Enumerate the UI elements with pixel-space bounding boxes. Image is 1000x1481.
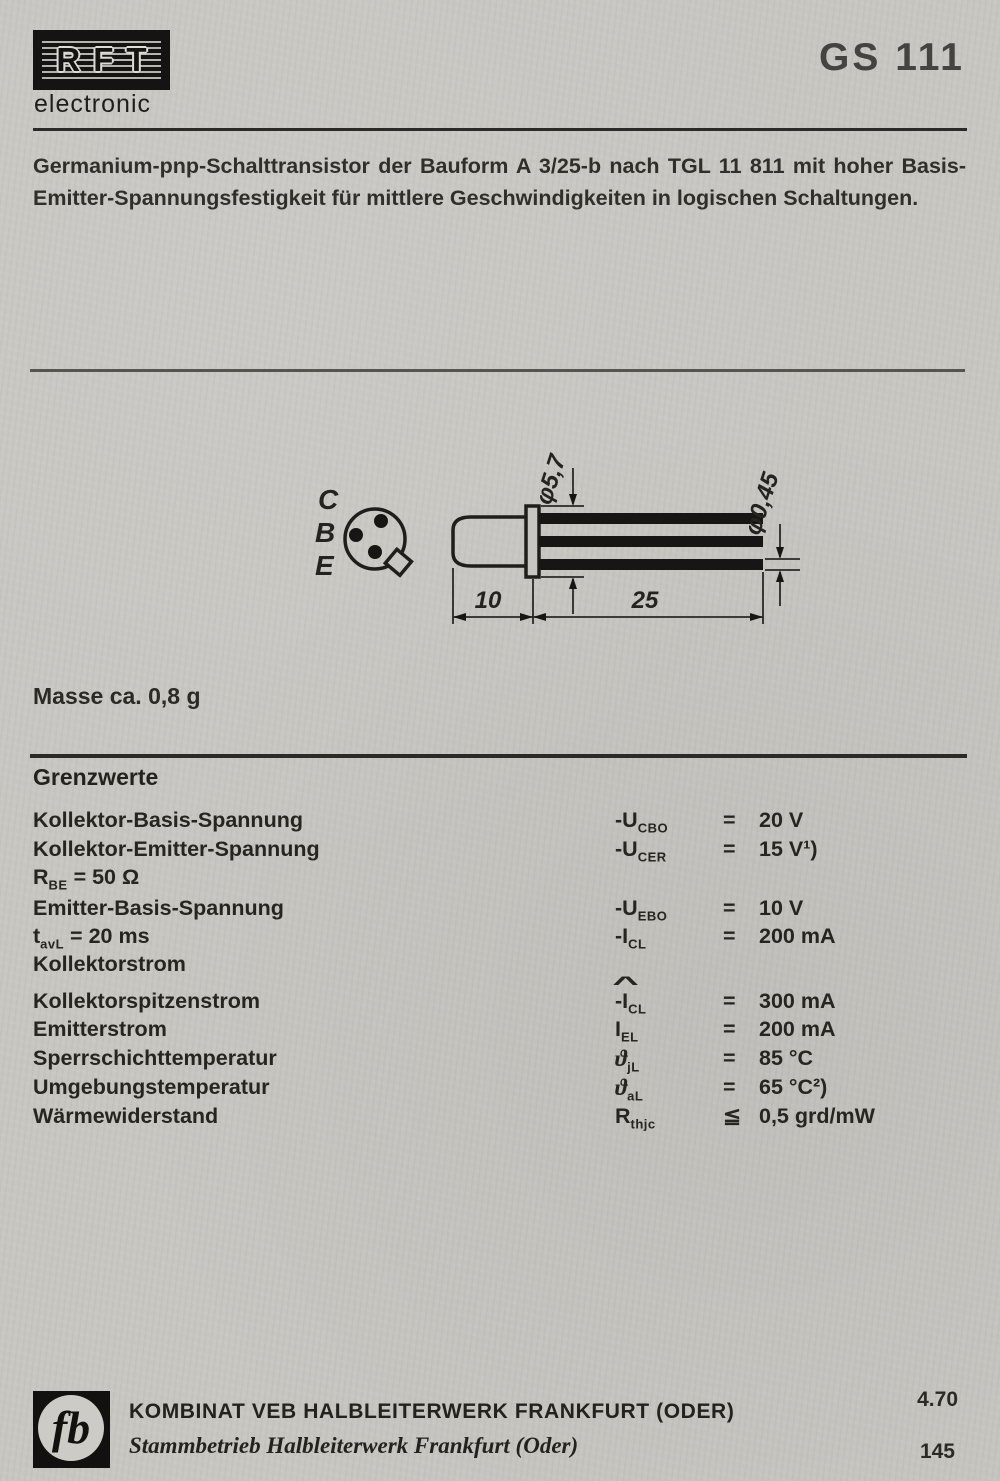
- datasheet-page: RFT electronic GS 111 Germanium-pnp-Scha…: [0, 0, 1000, 1481]
- dim-arrow: [569, 577, 577, 589]
- pin-dot-e: [368, 545, 382, 559]
- table-row: Sperrschichttemperatur ϑjL = 85 °C: [33, 1046, 968, 1073]
- limit-value: 20 V: [759, 808, 803, 833]
- pin-label-base: B: [315, 517, 335, 548]
- hfo-logo-glyph: fb: [52, 1405, 90, 1451]
- table-row: Kollektor-Basis-Spannung -UCBO = 20 V: [33, 808, 968, 835]
- symbol-subscript: CER: [638, 849, 667, 864]
- relation-sign: =: [723, 924, 736, 949]
- symbol-text: ϑ: [615, 1075, 627, 1100]
- limit-symbol: IEL: [615, 1017, 639, 1044]
- symbol-subscript: jL: [627, 1059, 640, 1074]
- section-divider: [30, 369, 965, 372]
- limits-title: Grenzwerte: [33, 764, 158, 791]
- dim-arrow: [453, 613, 466, 621]
- symbol-text: -U: [615, 808, 638, 832]
- condition-subscript: BE: [49, 877, 68, 892]
- limit-label: Emitterstrom: [33, 1017, 167, 1042]
- limit-label: Emitter-Basis-Spannung: [33, 896, 284, 921]
- limit-label: Kollektorstrom: [33, 952, 186, 977]
- limit-label: Kollektorspitzenstrom: [33, 989, 260, 1014]
- dim-lead-diameter: φ0,45: [739, 469, 785, 538]
- limit-label: Umgebungstemperatur: [33, 1075, 270, 1100]
- relation-sign: =: [723, 837, 736, 862]
- hfo-logo-circle: fb: [38, 1395, 104, 1461]
- table-row: Kollektor-Emitter-Spannung -UCER = 15 V¹…: [33, 837, 968, 864]
- limit-symbol: -ICL: [615, 924, 646, 951]
- lead-middle: [539, 536, 763, 547]
- edition-date: 4.70: [917, 1388, 958, 1412]
- pin-dot-c: [374, 514, 388, 528]
- limit-value: 65 °C²): [759, 1075, 827, 1100]
- relation-sign: =: [723, 1075, 736, 1100]
- symbol-text: R: [615, 1104, 631, 1128]
- condition-text: = 20 ms: [64, 924, 149, 948]
- limit-label: Kollektor-Basis-Spannung: [33, 808, 303, 833]
- limits-divider: [30, 754, 967, 758]
- case-flange: [526, 506, 539, 577]
- rft-logo: RFT: [33, 30, 170, 90]
- condition-text: = 50 Ω: [68, 865, 140, 889]
- symbol-text: -U: [615, 837, 638, 861]
- symbol-subscript: CBO: [638, 820, 668, 835]
- case-tab: [385, 549, 411, 575]
- description-line-2: Emitter-Spannungsfestigkeit für mittlere…: [33, 182, 966, 214]
- part-number: GS 111: [819, 36, 965, 80]
- hfo-logo: fb: [33, 1391, 110, 1468]
- symbol-subscript: EBO: [638, 908, 668, 923]
- limit-symbol: -UCBO: [615, 808, 668, 835]
- symbol-text: -I: [615, 924, 628, 948]
- dim-arrow: [520, 613, 533, 621]
- dim-arrow: [776, 570, 784, 582]
- peak-hat-mark: ^: [612, 974, 639, 996]
- symbol-subscript: aL: [627, 1088, 643, 1103]
- limit-value: 200 mA: [759, 924, 836, 949]
- limit-symbol: Rthjc: [615, 1104, 656, 1131]
- pin-label-emitter: E: [315, 550, 335, 581]
- limit-symbol: -UEBO: [615, 896, 667, 923]
- limit-label: Wärmewiderstand: [33, 1104, 218, 1129]
- limit-value: 10 V: [759, 896, 803, 921]
- symbol-text: -U: [615, 896, 638, 920]
- limit-value: 85 °C: [759, 1046, 813, 1071]
- table-row: tavL = 20 ms -ICL = 200 mA: [33, 924, 968, 951]
- limit-value: 300 mA: [759, 989, 836, 1014]
- brand-subtext: electronic: [34, 90, 151, 119]
- relation-sign: =: [723, 808, 736, 833]
- manufacturer-line: KOMBINAT VEB HALBLEITERWERK FRANKFURT (O…: [129, 1400, 734, 1424]
- symbol-subscript: CL: [628, 1001, 646, 1016]
- dim-arrow: [569, 494, 577, 506]
- table-row: Kollektorspitzenstrom ^-ICL = 300 mA: [33, 989, 968, 1016]
- limits-table: Kollektor-Basis-Spannung -UCBO = 20 V Ko…: [33, 808, 968, 1148]
- rft-logo-text: RFT: [33, 30, 170, 90]
- plant-line: Stammbetrieb Halbleiterwerk Frankfurt (O…: [129, 1433, 578, 1459]
- table-row: Umgebungstemperatur ϑaL = 65 °C²): [33, 1075, 968, 1102]
- table-row: Emitterstrom IEL = 200 mA: [33, 1017, 968, 1044]
- limit-symbol: ϑjL: [615, 1046, 640, 1074]
- limit-symbol: ϑaL: [615, 1075, 643, 1103]
- pin-dot-b: [349, 528, 363, 542]
- limit-condition: tavL = 20 ms: [33, 924, 150, 951]
- pin-label-collector: C: [318, 484, 339, 515]
- lead-top: [539, 513, 763, 524]
- limit-condition: RBE = 50 Ω: [33, 865, 139, 892]
- dim-lead-length: 25: [631, 587, 659, 614]
- dim-arrow: [533, 613, 546, 621]
- dim-flange-diameter: φ5,7: [530, 450, 572, 508]
- condition-subscript: avL: [40, 936, 64, 951]
- description-line-1: Germanium-pnp-Schalttransistor der Baufo…: [33, 150, 966, 182]
- table-row: Wärmewiderstand Rthjc ≦ 0,5 grd/mW: [33, 1104, 968, 1131]
- relation-sign: =: [723, 1046, 736, 1071]
- dim-arrow: [750, 613, 763, 621]
- relation-sign: =: [723, 989, 736, 1014]
- relation-sign: =: [723, 1017, 736, 1042]
- relation-sign: ≦: [723, 1104, 741, 1129]
- symbol-subscript: CL: [628, 936, 646, 951]
- case-body: [453, 517, 526, 566]
- limit-value: 0,5 grd/mW: [759, 1104, 875, 1129]
- relation-sign: =: [723, 896, 736, 921]
- limit-label: Sperrschichttemperatur: [33, 1046, 277, 1071]
- symbol-text: ϑ: [615, 1046, 627, 1071]
- description-paragraph: Germanium-pnp-Schalttransistor der Baufo…: [33, 150, 966, 214]
- page-number: 145: [920, 1440, 955, 1464]
- header-divider: [33, 128, 967, 131]
- limit-label: Kollektor-Emitter-Spannung: [33, 837, 320, 862]
- symbol-subscript: EL: [621, 1029, 639, 1044]
- symbol-subscript: thjc: [631, 1116, 656, 1131]
- limit-symbol: ^-ICL: [615, 989, 646, 1016]
- condition-text: R: [33, 865, 49, 889]
- table-row: Emitter-Basis-Spannung -UEBO = 10 V: [33, 896, 968, 923]
- table-row: Kollektorstrom: [33, 952, 968, 979]
- dim-arrow: [776, 547, 784, 559]
- dim-body-length: 10: [475, 587, 502, 614]
- limit-symbol: -UCER: [615, 837, 667, 864]
- table-row: RBE = 50 Ω: [33, 865, 968, 892]
- mass-note: Masse ca. 0,8 g: [33, 683, 201, 710]
- limit-value: 200 mA: [759, 1017, 836, 1042]
- lead-bottom: [539, 559, 763, 570]
- limit-value: 15 V¹): [759, 837, 818, 862]
- transistor-outline-drawing: C B E φ5,7 φ0,45: [288, 424, 828, 659]
